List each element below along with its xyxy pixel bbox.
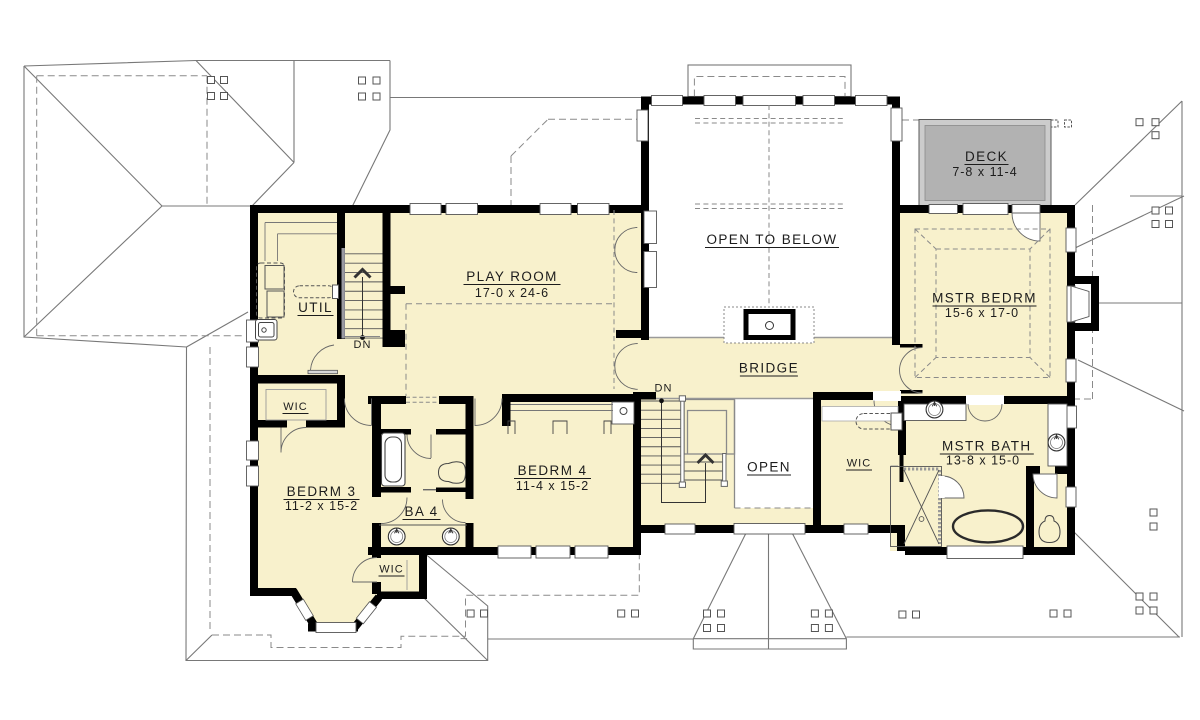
svg-text:WIC: WIC [283,401,307,413]
svg-text:DN: DN [655,383,673,395]
svg-text:7-8 x 11-4: 7-8 x 11-4 [952,165,1017,179]
svg-text:UTIL: UTIL [298,300,333,315]
svg-text:15-6 x 17-0: 15-6 x 17-0 [945,306,1019,320]
svg-text:13-8 x 15-0: 13-8 x 15-0 [946,454,1020,468]
svg-text:WIC: WIC [847,458,871,470]
svg-text:BRIDGE: BRIDGE [739,361,799,376]
svg-text:BEDRM 4: BEDRM 4 [518,463,588,478]
svg-text:OPEN TO BELOW: OPEN TO BELOW [707,232,838,247]
svg-text:DECK: DECK [965,149,1008,164]
svg-text:MSTR BATH: MSTR BATH [942,439,1032,454]
svg-text:17-0 x 24-6: 17-0 x 24-6 [475,286,549,300]
svg-text:DN: DN [354,339,372,351]
svg-text:11-2 x 15-2: 11-2 x 15-2 [285,499,358,513]
svg-text:PLAY ROOM: PLAY ROOM [466,269,558,284]
svg-text:11-4 x 15-2: 11-4 x 15-2 [516,479,589,493]
svg-text:BEDRM 3: BEDRM 3 [287,484,357,499]
svg-text:WIC: WIC [379,564,403,576]
svg-text:MSTR BEDRM: MSTR BEDRM [932,291,1037,306]
svg-text:OPEN: OPEN [747,460,791,475]
svg-text:BA 4: BA 4 [404,504,438,519]
